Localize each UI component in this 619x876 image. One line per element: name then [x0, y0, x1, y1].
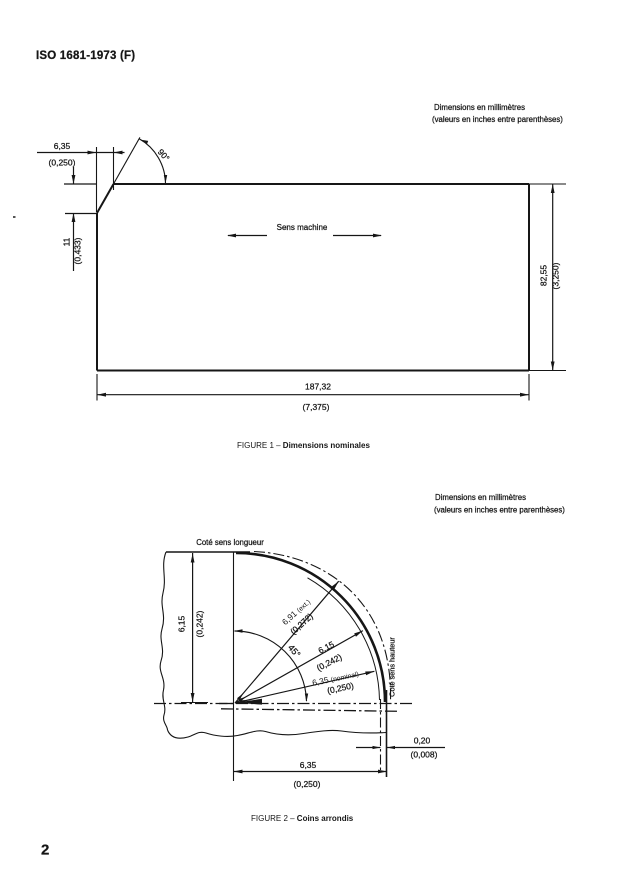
svg-text:Dimensions en millimètres: Dimensions en millimètres	[435, 493, 526, 502]
svg-text:11: 11	[62, 237, 72, 246]
svg-text:(0,250): (0,250)	[49, 158, 76, 168]
svg-text:(valeurs en inches entre paren: (valeurs en inches entre parenthèses)	[432, 115, 563, 124]
svg-text:Dimensions en millimètres: Dimensions en millimètres	[434, 103, 525, 112]
svg-text:FIGURE 2 – Coins arrondis: FIGURE 2 – Coins arrondis	[251, 814, 354, 823]
svg-text:Coté sens longueur: Coté sens longueur	[196, 538, 264, 547]
svg-text:(0,433): (0,433)	[73, 237, 83, 264]
svg-text:90°: 90°	[156, 147, 172, 163]
svg-text:(0,250): (0,250)	[294, 779, 321, 789]
svg-text:(0,008): (0,008)	[411, 750, 438, 760]
svg-text:6,15: 6,15	[177, 615, 187, 632]
svg-text:45°: 45°	[286, 643, 303, 660]
svg-text:FIGURE 1 – Dimensions nominale: FIGURE 1 – Dimensions nominales	[237, 441, 370, 450]
svg-text:187,32: 187,32	[305, 382, 331, 392]
svg-text:6,15: 6,15	[316, 639, 336, 656]
svg-text:2: 2	[41, 842, 49, 859]
svg-text:0,20: 0,20	[414, 736, 431, 746]
svg-text:6,35: 6,35	[54, 141, 71, 151]
svg-text:(7,375): (7,375)	[303, 402, 330, 412]
svg-text:82,55: 82,55	[539, 265, 549, 287]
svg-text:ISO 1681-1973 (F): ISO 1681-1973 (F)	[36, 50, 135, 62]
svg-text:6,35: 6,35	[300, 760, 317, 770]
svg-text:Coté sens hauteur: Coté sens hauteur	[388, 637, 397, 697]
svg-text:(3,250): (3,250)	[551, 262, 561, 289]
svg-text:(valeurs en inches entre paren: (valeurs en inches entre parenthèses)	[434, 506, 565, 515]
svg-text:Sens machine: Sens machine	[277, 223, 328, 232]
svg-text:(0,242): (0,242)	[195, 610, 205, 637]
